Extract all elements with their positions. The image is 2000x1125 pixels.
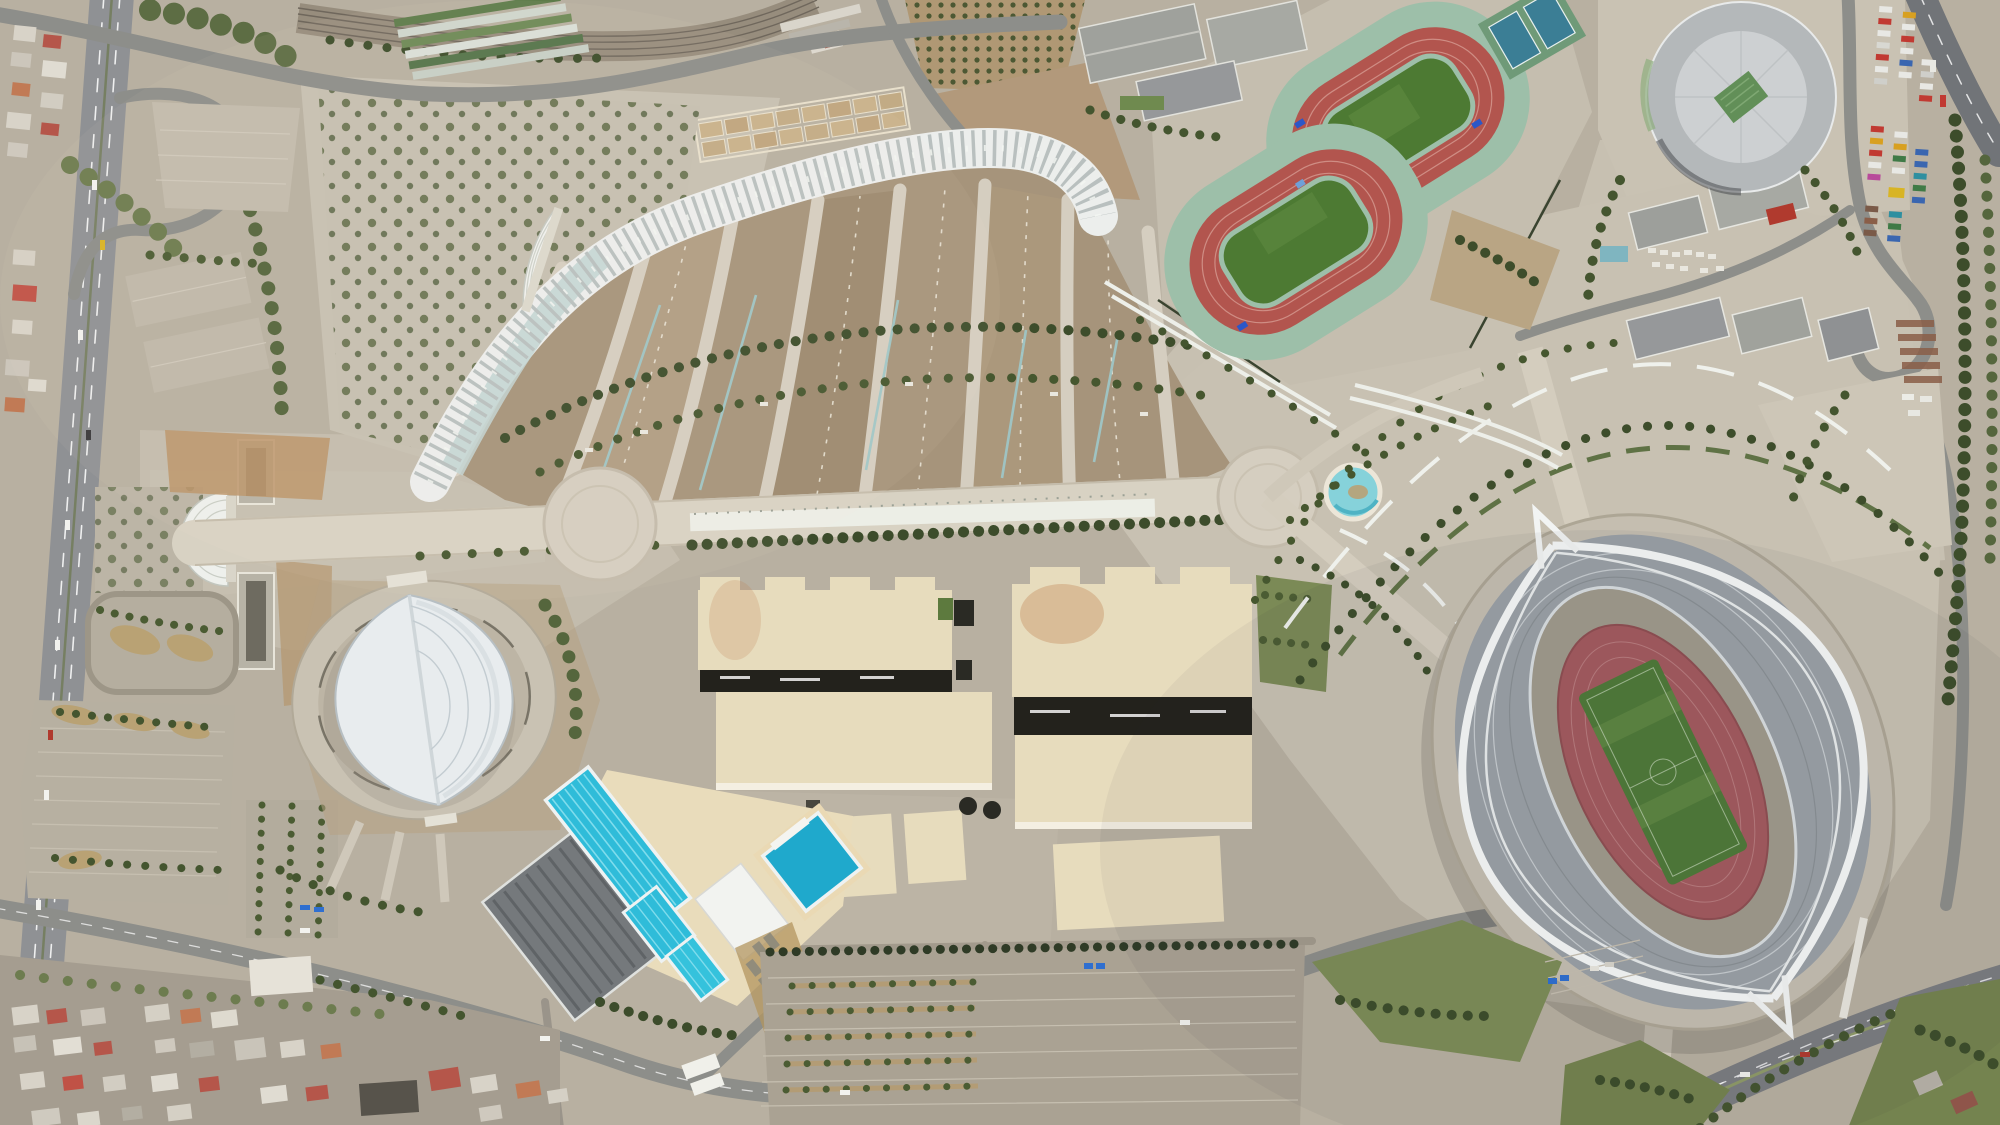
parking-mid-rows	[246, 800, 338, 938]
aerial-photo	[0, 0, 2000, 1125]
aerial-canvas	[0, 0, 2000, 1125]
kidney-parking	[88, 594, 236, 692]
hall-c	[716, 692, 992, 789]
